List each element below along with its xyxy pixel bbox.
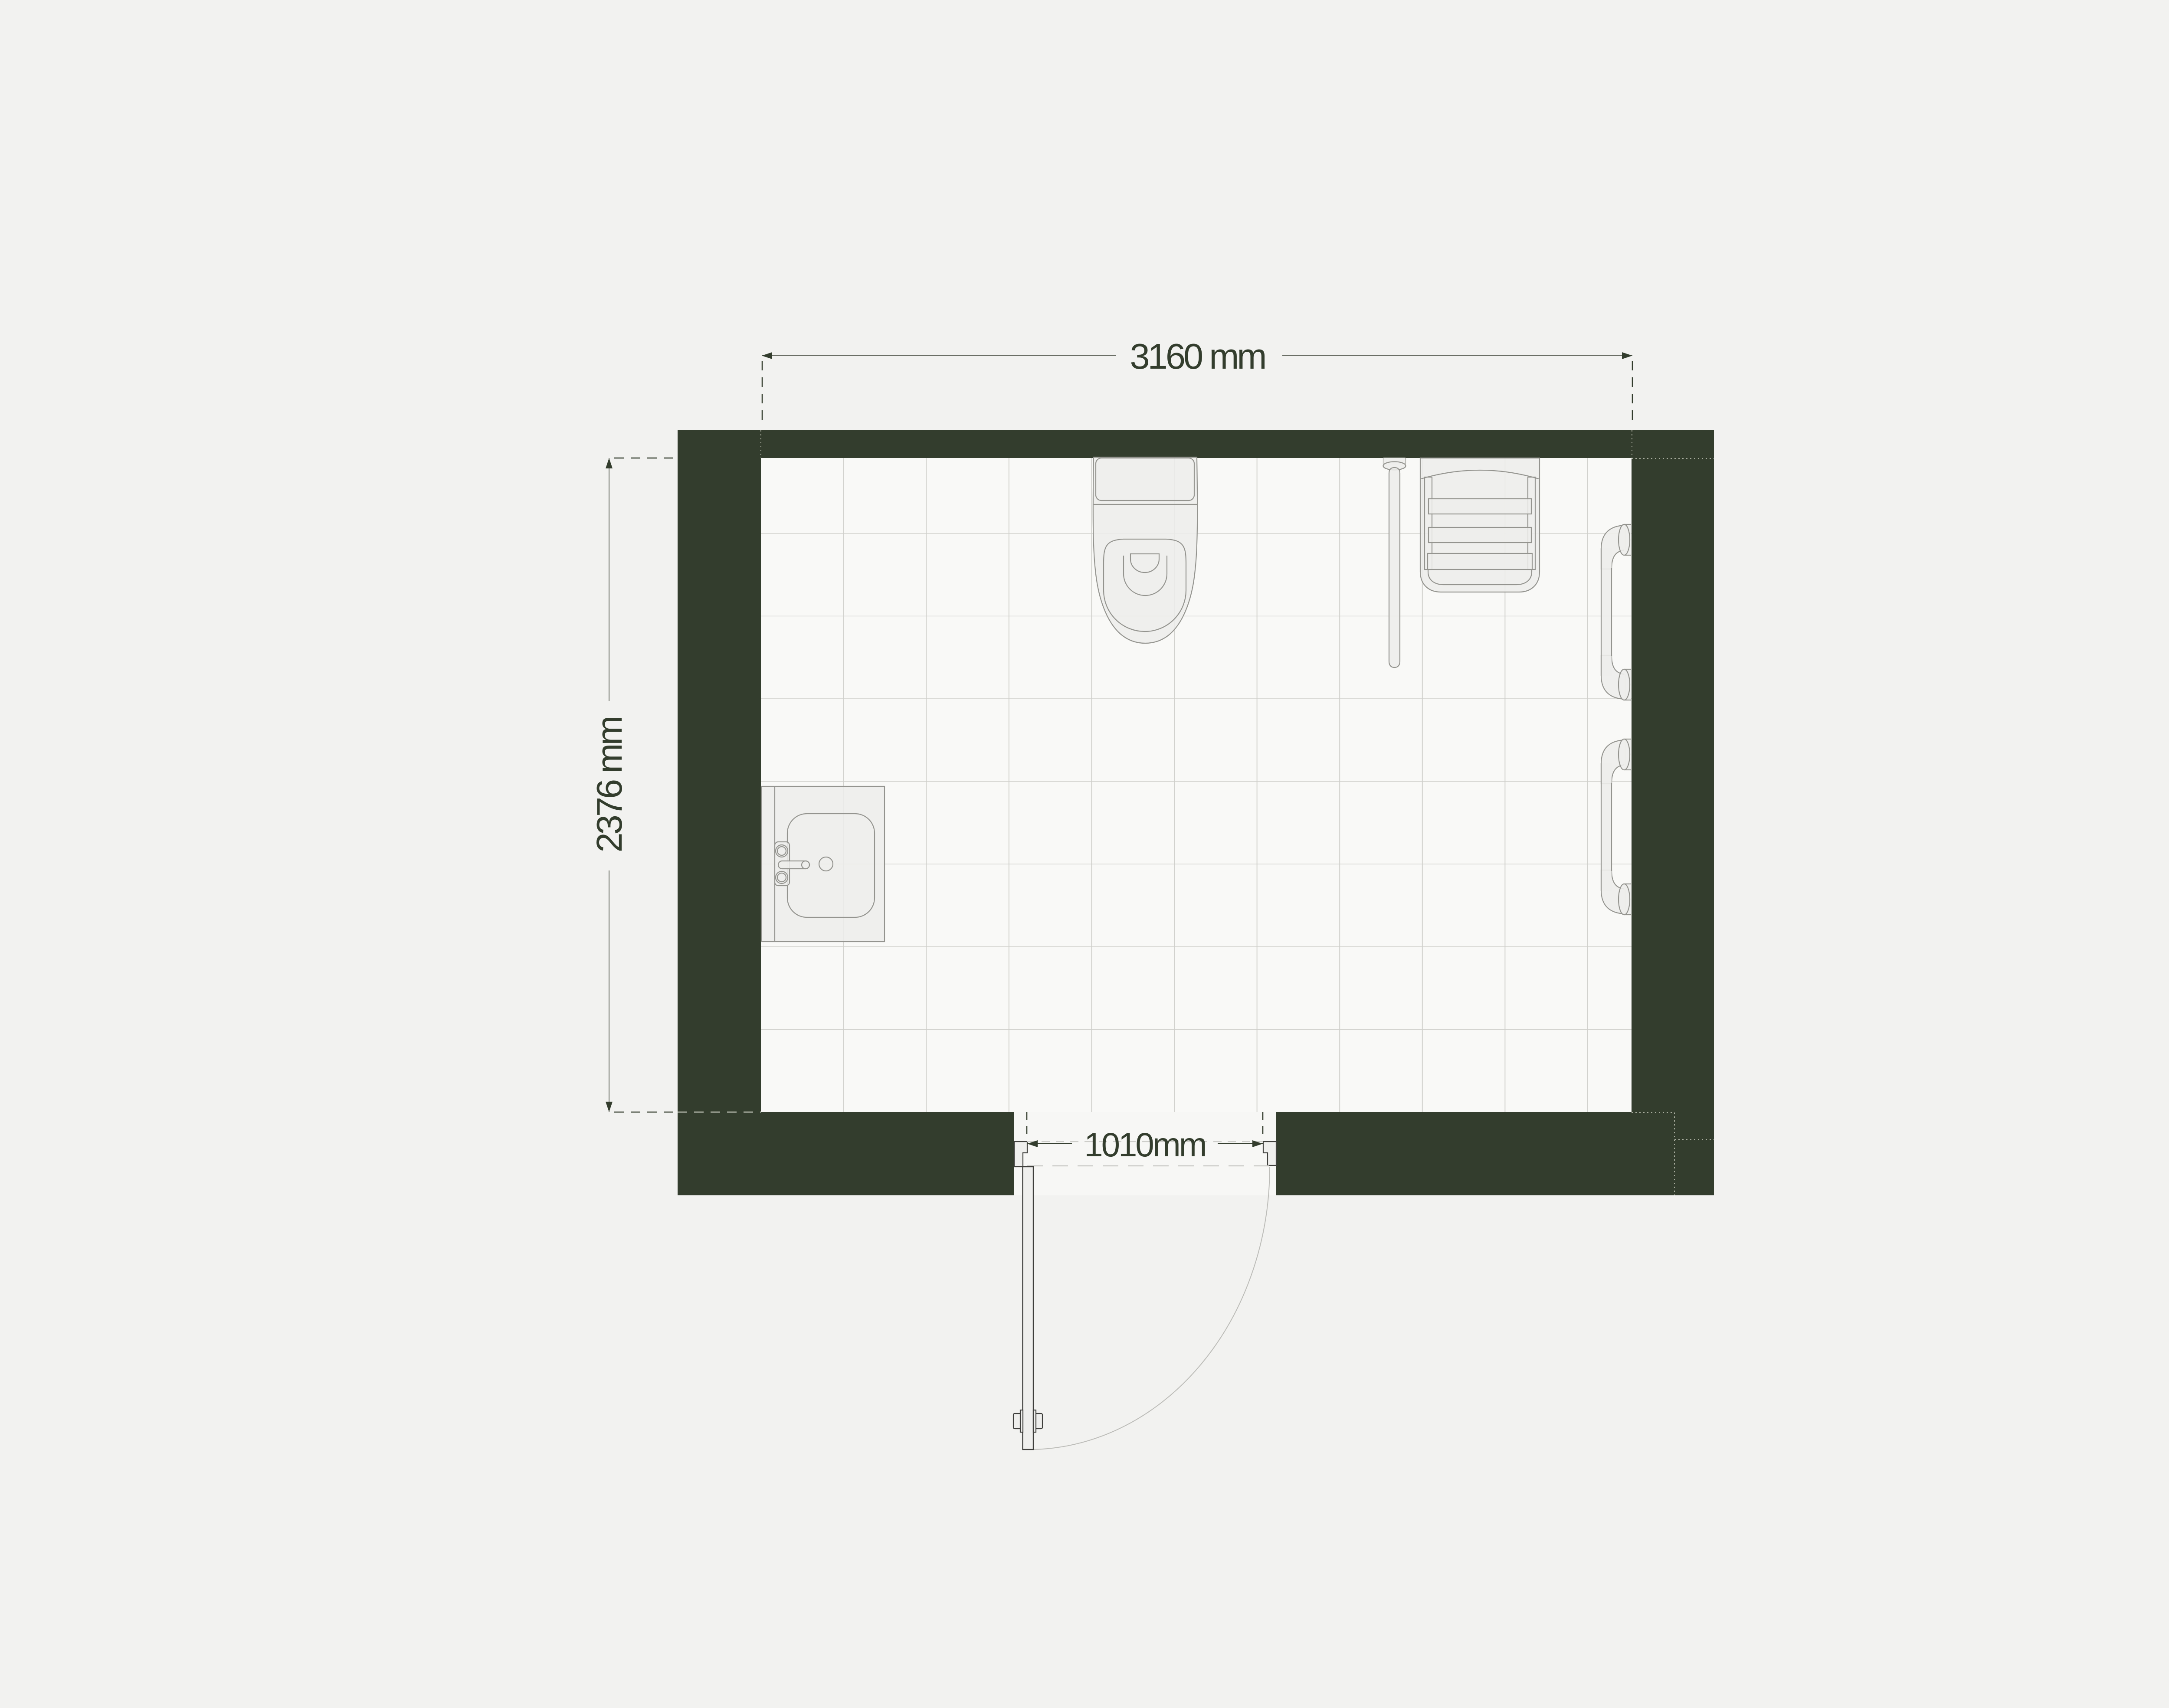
svg-text:1010mm: 1010mm [1084,1126,1205,1164]
svg-text:3160 mm: 3160 mm [1130,336,1265,376]
svg-text:2376 mm: 2376 mm [589,718,629,853]
